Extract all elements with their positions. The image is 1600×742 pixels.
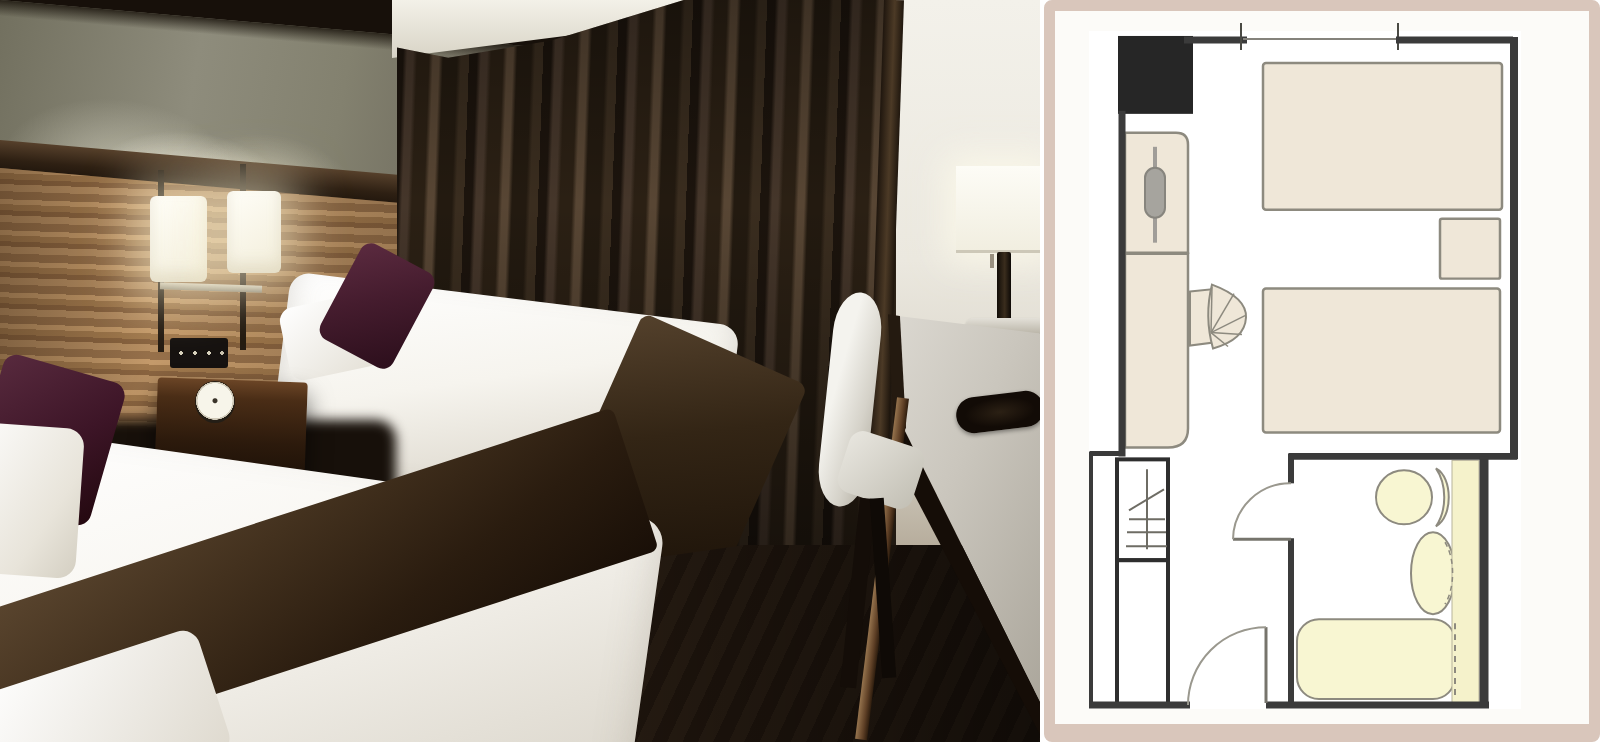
floorplan-card — [1044, 0, 1600, 742]
screenshot-root — [0, 0, 1600, 742]
nightstand — [1440, 219, 1500, 279]
desk-lamp-switch — [990, 254, 994, 268]
bathtub — [1297, 619, 1455, 699]
wall-lamp-right — [227, 191, 281, 273]
desk-lampshade — [956, 166, 1040, 253]
wardrobe-lower — [1117, 560, 1168, 705]
wall-lamp-left — [150, 196, 207, 282]
desk-chair-fan-spoke — [1211, 287, 1212, 333]
wardrobe-upper — [1117, 459, 1168, 560]
light-switch-panel — [170, 338, 228, 368]
bed-1 — [1263, 63, 1502, 210]
floorplan-drawing — [1055, 11, 1589, 724]
bed-2 — [1263, 289, 1500, 433]
toilet-bowl — [1376, 470, 1432, 524]
bath-counter — [1452, 460, 1479, 703]
near-bed-white-pillow — [0, 421, 85, 579]
trouser-press-pad — [1145, 168, 1165, 218]
hotel-room-photo — [0, 0, 1040, 742]
structural-column — [1118, 36, 1193, 114]
sink — [1411, 532, 1455, 614]
alarm-clock — [195, 381, 235, 423]
desk — [1125, 254, 1188, 448]
